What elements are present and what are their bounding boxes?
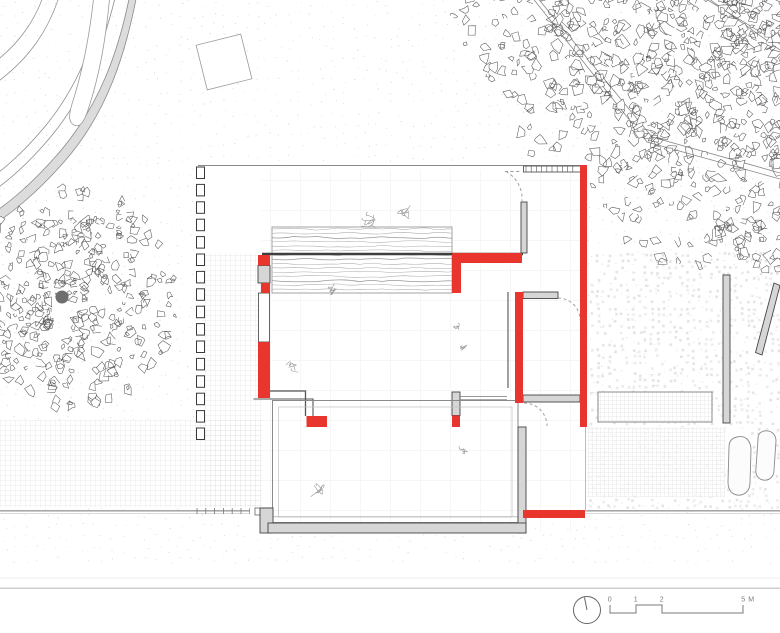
plaza-arc-line bbox=[0, 0, 44, 64]
scale-bar-line bbox=[610, 605, 743, 613]
wall-segment bbox=[452, 392, 460, 416]
scale-label-2: 2 bbox=[660, 597, 665, 604]
plaza-arc-line bbox=[0, 0, 60, 86]
curved-bench bbox=[70, 0, 110, 126]
south-wall bbox=[268, 523, 526, 533]
wall-segment bbox=[523, 395, 580, 402]
tilted-square-platform bbox=[196, 34, 252, 90]
red-wall bbox=[307, 416, 328, 427]
red-wall bbox=[258, 255, 270, 266]
red-wall-center bbox=[515, 292, 523, 403]
scale-label-5m: 5 M bbox=[741, 597, 754, 604]
red-wall bbox=[452, 416, 460, 428]
scale-bar: 0 1 2 5 M bbox=[608, 597, 755, 614]
bench-planter bbox=[598, 392, 712, 422]
scale-label-0: 0 bbox=[608, 597, 613, 604]
paving-panel bbox=[587, 427, 725, 497]
red-wall-south bbox=[523, 510, 585, 518]
stone bbox=[756, 431, 776, 480]
wall-segment bbox=[523, 292, 558, 299]
scale-label-1: 1 bbox=[634, 597, 639, 604]
wall-segment bbox=[259, 293, 270, 342]
red-wall-east bbox=[580, 165, 587, 427]
red-wall bbox=[452, 253, 461, 293]
north-indicator-icon bbox=[574, 597, 601, 624]
water-pool bbox=[272, 227, 470, 293]
red-wall bbox=[261, 283, 270, 293]
site-plan-drawing: 0 1 2 5 M bbox=[0, 0, 780, 633]
wall-segment bbox=[258, 266, 270, 284]
red-wall-west bbox=[258, 342, 270, 398]
plaza-arcs bbox=[0, 0, 137, 226]
wall-segment bbox=[521, 202, 527, 253]
site-plan-svg: 0 1 2 5 M bbox=[0, 0, 780, 633]
tree-trunk-dot bbox=[56, 291, 69, 304]
tree-left-canopy bbox=[0, 184, 176, 412]
red-wall bbox=[452, 253, 522, 263]
paving-grid-block bbox=[0, 420, 262, 508]
floor-tile-grid bbox=[262, 170, 587, 533]
paving-grid bbox=[0, 253, 262, 508]
north-needle bbox=[585, 598, 588, 611]
vertical-screen-wall bbox=[723, 275, 730, 423]
stone bbox=[728, 437, 751, 496]
square-platform-outline bbox=[196, 34, 252, 90]
